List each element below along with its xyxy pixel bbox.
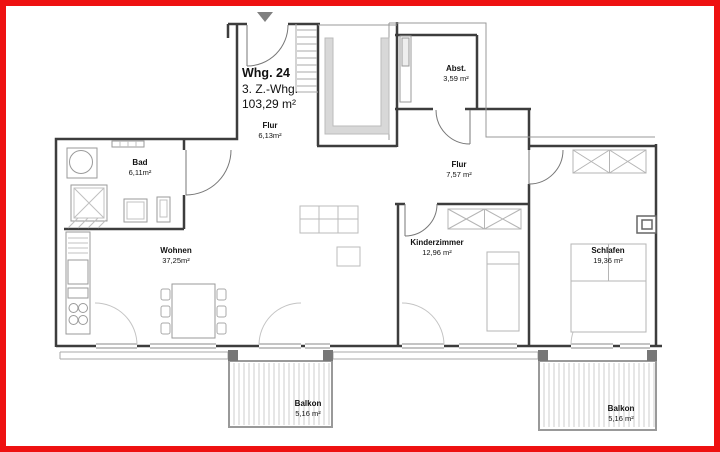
balcony-right [539,361,656,430]
stairs [296,24,318,92]
floorplan-page: Whg. 24 3. Z.-Whg. 103,29 m² Flur 6,13m²… [0,0,720,452]
room-label-bad: Bad 6,11m² [129,158,152,177]
bathroom-fixtures [67,141,170,228]
bidet [157,197,170,222]
room-label-flur1: Flur 6,13m² [258,121,281,140]
abst-door [436,110,470,144]
room-label-balkon1: Balkon 5,16 m² [295,399,322,418]
bad-door [186,150,231,195]
room-label-flur2: Flur 7,57 m² [446,160,471,179]
entrance-arrow-icon [257,12,273,22]
apartment-title: Whg. 24 3. Z.-Whg. 103,29 m² [242,66,298,113]
apartment-unit: Whg. 24 [242,66,298,82]
kinderzimmer-door [405,204,437,236]
schlafen-furniture [571,150,656,332]
abst-duct [400,36,411,102]
dining-table [172,284,215,338]
wall-niche [637,216,656,233]
apartment-total-area: 103,29 m² [242,97,298,113]
kinderzimmer-furniture [448,209,521,331]
room-label-abst: Abst. 3,59 m² [443,64,468,83]
schlafen-door [529,150,563,184]
apartment-type: 3. Z.-Whg. [242,82,298,98]
stair-void [325,38,389,134]
room-label-wohnen: Wohnen 37,25m² [160,246,191,265]
room-label-balkon2: Balkon 5,16 m² [608,404,635,423]
neighbor-boundary-lines [318,23,655,140]
room-label-schlafen: Schlafen 19,36 m² [591,246,624,265]
entrance-door [247,25,288,66]
floorplan-drawing [0,0,720,452]
room-label-kinderzimmer: Kinderzimmer 12,96 m² [410,238,463,257]
coffee-table [337,247,360,266]
window-sill-band [60,352,538,359]
kitchen-counter [66,232,90,334]
dining-set [161,284,226,338]
living-furniture [300,206,360,266]
